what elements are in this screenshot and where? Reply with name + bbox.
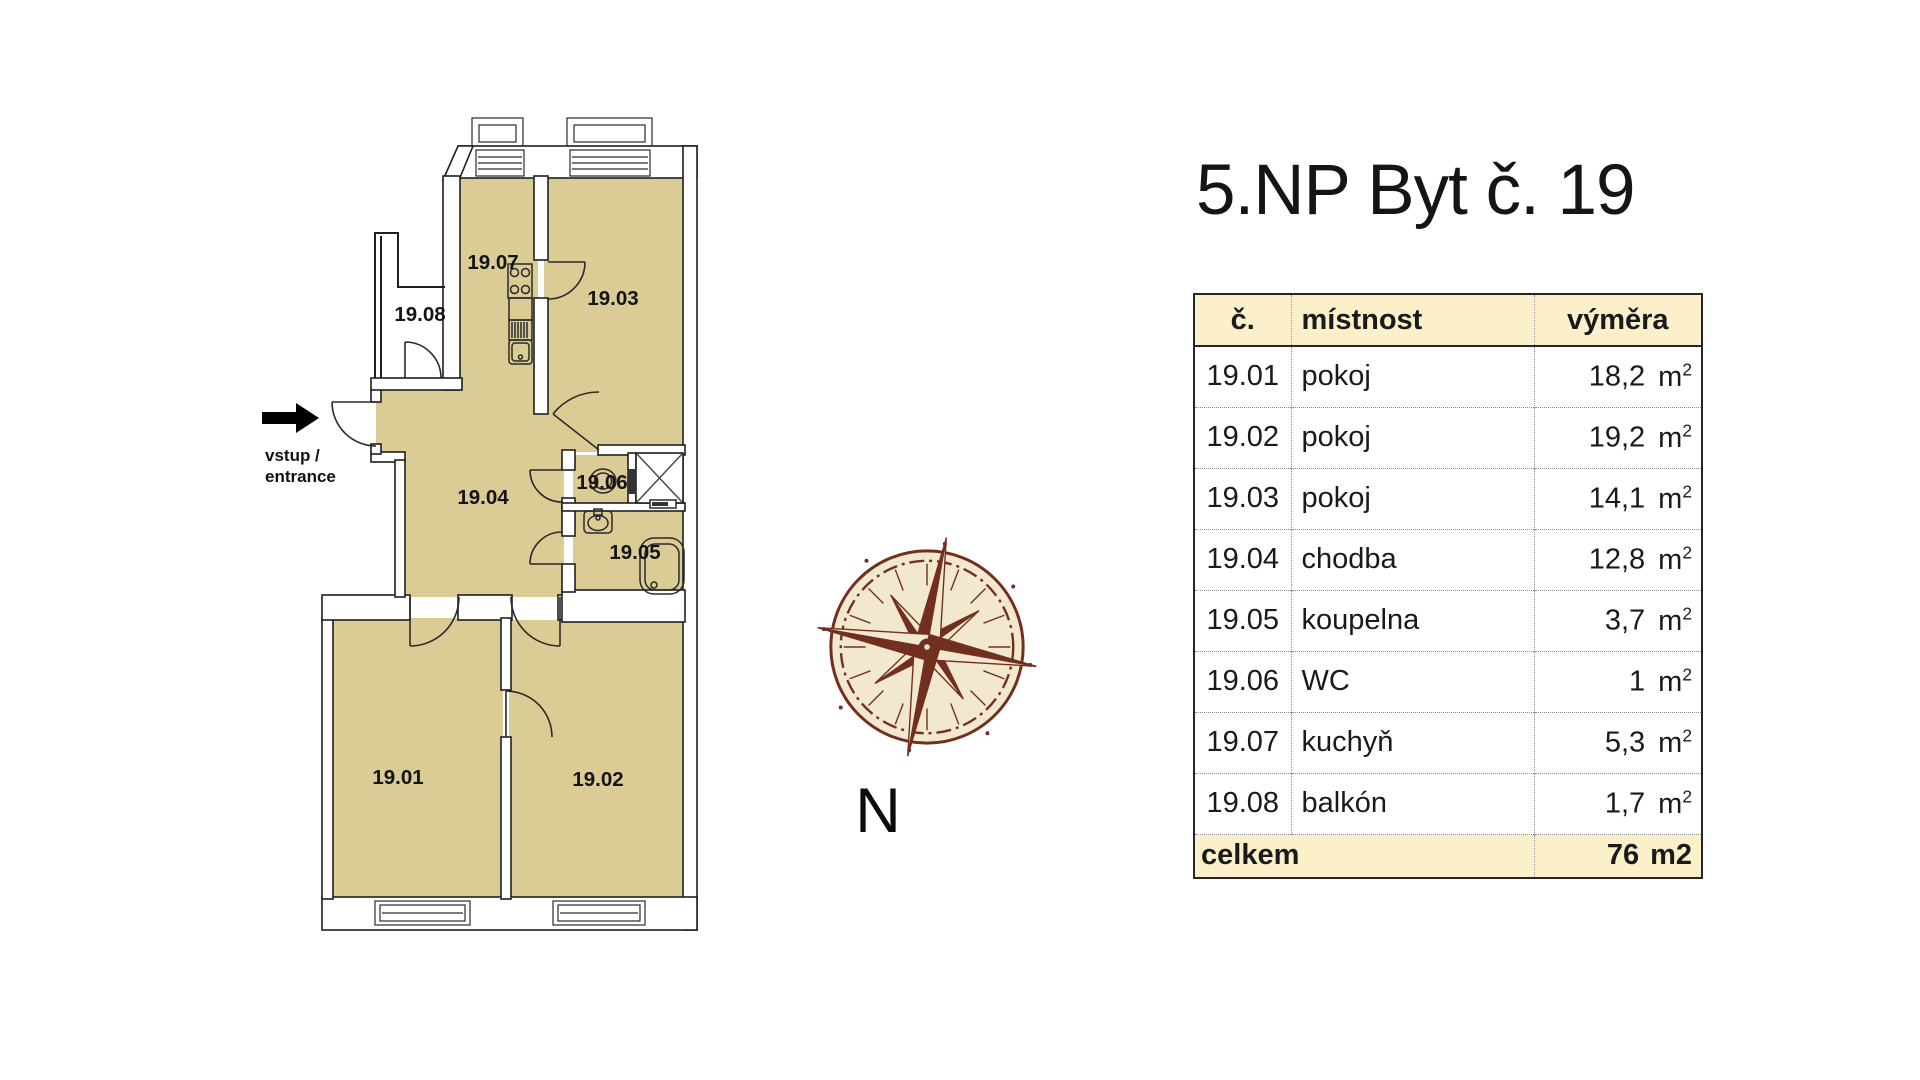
table-footer-row: celkem 76m2: [1194, 834, 1702, 878]
balcony-door-arc: [405, 342, 441, 378]
room-name-cell: pokoj: [1291, 468, 1534, 529]
table-row: 19.05 koupelna 3,7m2: [1194, 590, 1702, 651]
table-row: 19.02 pokoj 19,2m2: [1194, 407, 1702, 468]
room-name-cell: pokoj: [1291, 407, 1534, 468]
room-area-cell: 12,8m2: [1534, 529, 1702, 590]
room-19-03: [544, 178, 685, 452]
entrance-arrow-icon: [262, 403, 319, 433]
total-value-cell: 76m2: [1534, 834, 1702, 878]
room-name-cell: pokoj: [1291, 346, 1534, 407]
col-header-num: č.: [1194, 294, 1291, 346]
table-row: 19.08 balkón 1,7m2: [1194, 773, 1702, 834]
compass-rose: [813, 533, 1041, 761]
room-area-cell: 18,2m2: [1534, 346, 1702, 407]
room-number-cell: 19.05: [1194, 590, 1291, 651]
label-19-07: 19.07: [467, 251, 518, 274]
table-row: 19.06 WC 1m2: [1194, 651, 1702, 712]
shaft: [636, 453, 683, 508]
room-area-cell: 5,3m2: [1534, 712, 1702, 773]
table-header-row: č. místnost výměra: [1194, 294, 1702, 346]
table-row: 19.07 kuchyň 5,3m2: [1194, 712, 1702, 773]
total-label-cell: celkem: [1194, 834, 1534, 878]
room-number-cell: 19.06: [1194, 651, 1291, 712]
room-area-cell: 1,7m2: [1534, 773, 1702, 834]
entrance-door-arc: [332, 402, 376, 446]
room-19-02: [509, 620, 685, 899]
room-number-cell: 19.01: [1194, 346, 1291, 407]
room-number-cell: 19.03: [1194, 468, 1291, 529]
label-19-02: 19.02: [572, 768, 623, 791]
room-number-cell: 19.04: [1194, 529, 1291, 590]
room-name-cell: balkón: [1291, 773, 1534, 834]
room-name-cell: kuchyň: [1291, 712, 1534, 773]
room-number-cell: 19.02: [1194, 407, 1291, 468]
room-number-cell: 19.08: [1194, 773, 1291, 834]
area-table-wrap: č. místnost výměra 19.01 pokoj 18,2m2 19…: [1193, 293, 1703, 879]
table-row: 19.03 pokoj 14,1m2: [1194, 468, 1702, 529]
col-header-room: místnost: [1291, 294, 1534, 346]
room-name-cell: koupelna: [1291, 590, 1534, 651]
floor-plan: vstup / entrance 19.07 19.03 19.08 19.04…: [250, 110, 710, 940]
label-19-08: 19.08: [394, 303, 445, 326]
page: vstup / entrance 19.07 19.03 19.08 19.04…: [0, 0, 1920, 1080]
north-label: N: [845, 775, 911, 847]
room-name-cell: chodba: [1291, 529, 1534, 590]
entrance-label-line2: entrance: [265, 467, 336, 486]
label-19-06: 19.06: [576, 471, 627, 494]
room-kitchen: [458, 178, 538, 422]
room-19-01: [331, 618, 503, 899]
room-area-cell: 19,2m2: [1534, 407, 1702, 468]
page-title: 5.NP Byt č. 19: [1196, 150, 1635, 231]
col-header-area: výměra: [1534, 294, 1702, 346]
area-table: č. místnost výměra 19.01 pokoj 18,2m2 19…: [1193, 293, 1703, 879]
room-area-cell: 3,7m2: [1534, 590, 1702, 651]
label-19-05: 19.05: [609, 541, 660, 564]
label-19-01: 19.01: [372, 766, 423, 789]
label-19-03: 19.03: [587, 287, 638, 310]
label-19-04: 19.04: [457, 486, 509, 509]
entrance-label-line1: vstup /: [265, 446, 320, 465]
room-area-cell: 1m2: [1534, 651, 1702, 712]
room-number-cell: 19.07: [1194, 712, 1291, 773]
table-row: 19.04 chodba 12,8m2: [1194, 529, 1702, 590]
room-name-cell: WC: [1291, 651, 1534, 712]
room-area-cell: 14,1m2: [1534, 468, 1702, 529]
table-row: 19.01 pokoj 18,2m2: [1194, 346, 1702, 407]
